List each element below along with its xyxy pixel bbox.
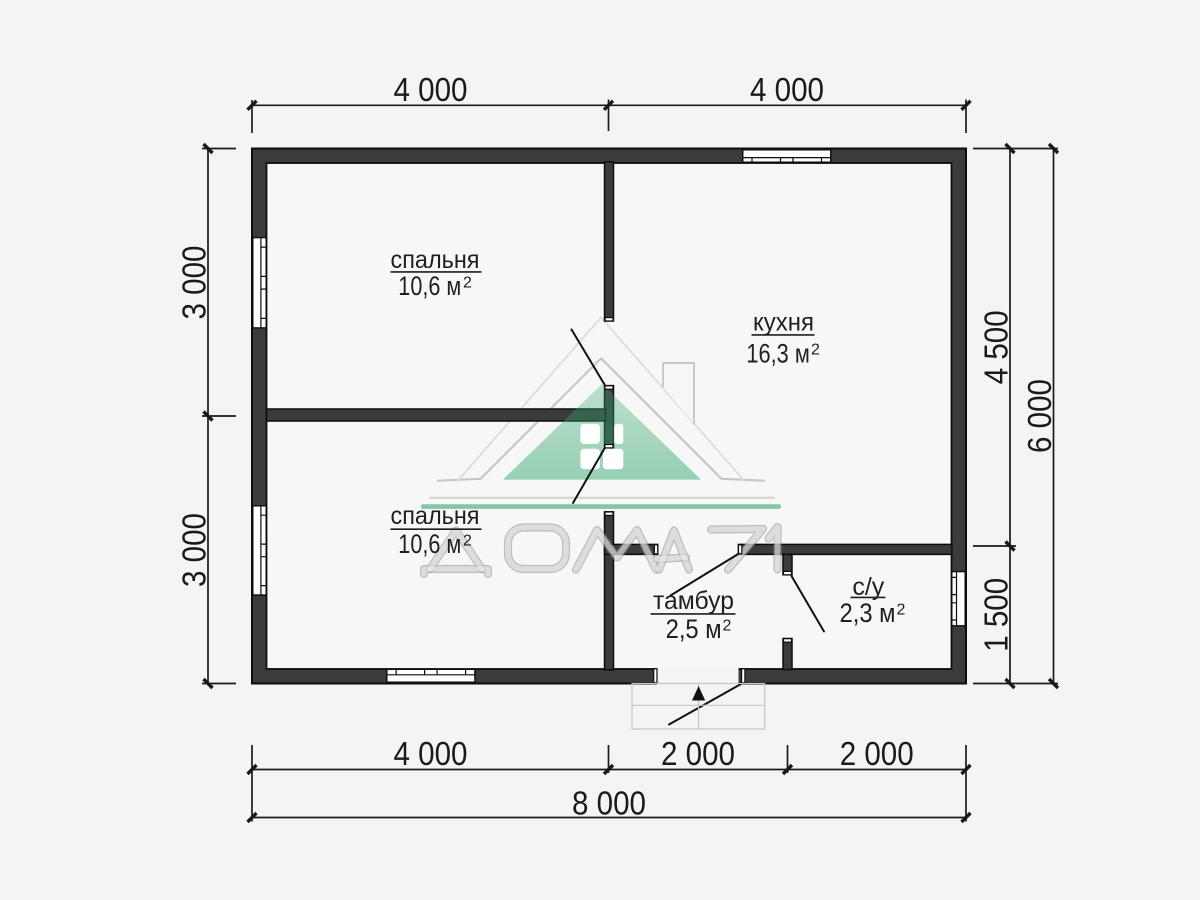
svg-text:2: 2 <box>723 618 732 635</box>
svg-text:2: 2 <box>897 602 906 619</box>
svg-text:4 000: 4 000 <box>394 72 468 109</box>
svg-text:4 000: 4 000 <box>394 736 468 773</box>
svg-text:16,3 м: 16,3 м <box>746 339 809 369</box>
svg-text:8 000: 8 000 <box>572 785 646 822</box>
svg-text:1 500: 1 500 <box>979 578 1016 652</box>
svg-text:4 000: 4 000 <box>750 72 824 109</box>
svg-text:2 000: 2 000 <box>840 736 914 773</box>
svg-text:2: 2 <box>463 275 472 292</box>
svg-text:2,5 м: 2,5 м <box>666 614 722 644</box>
svg-text:2: 2 <box>811 342 820 359</box>
svg-text:4 500: 4 500 <box>979 310 1016 384</box>
svg-text:2 000: 2 000 <box>661 736 735 773</box>
svg-text:кухня: кухня <box>753 308 814 336</box>
svg-text:10,6 м: 10,6 м <box>398 271 461 301</box>
svg-text:тамбур: тамбур <box>653 587 734 615</box>
svg-text:2: 2 <box>463 533 472 550</box>
svg-text:2,3 м: 2,3 м <box>840 598 896 628</box>
svg-text:спальня: спальня <box>391 246 480 274</box>
svg-text:10,6 м: 10,6 м <box>398 529 461 559</box>
svg-text:3 000: 3 000 <box>177 246 214 320</box>
svg-text:спальня: спальня <box>391 502 480 530</box>
svg-text:3 000: 3 000 <box>177 513 214 587</box>
svg-text:6 000: 6 000 <box>1022 379 1059 453</box>
